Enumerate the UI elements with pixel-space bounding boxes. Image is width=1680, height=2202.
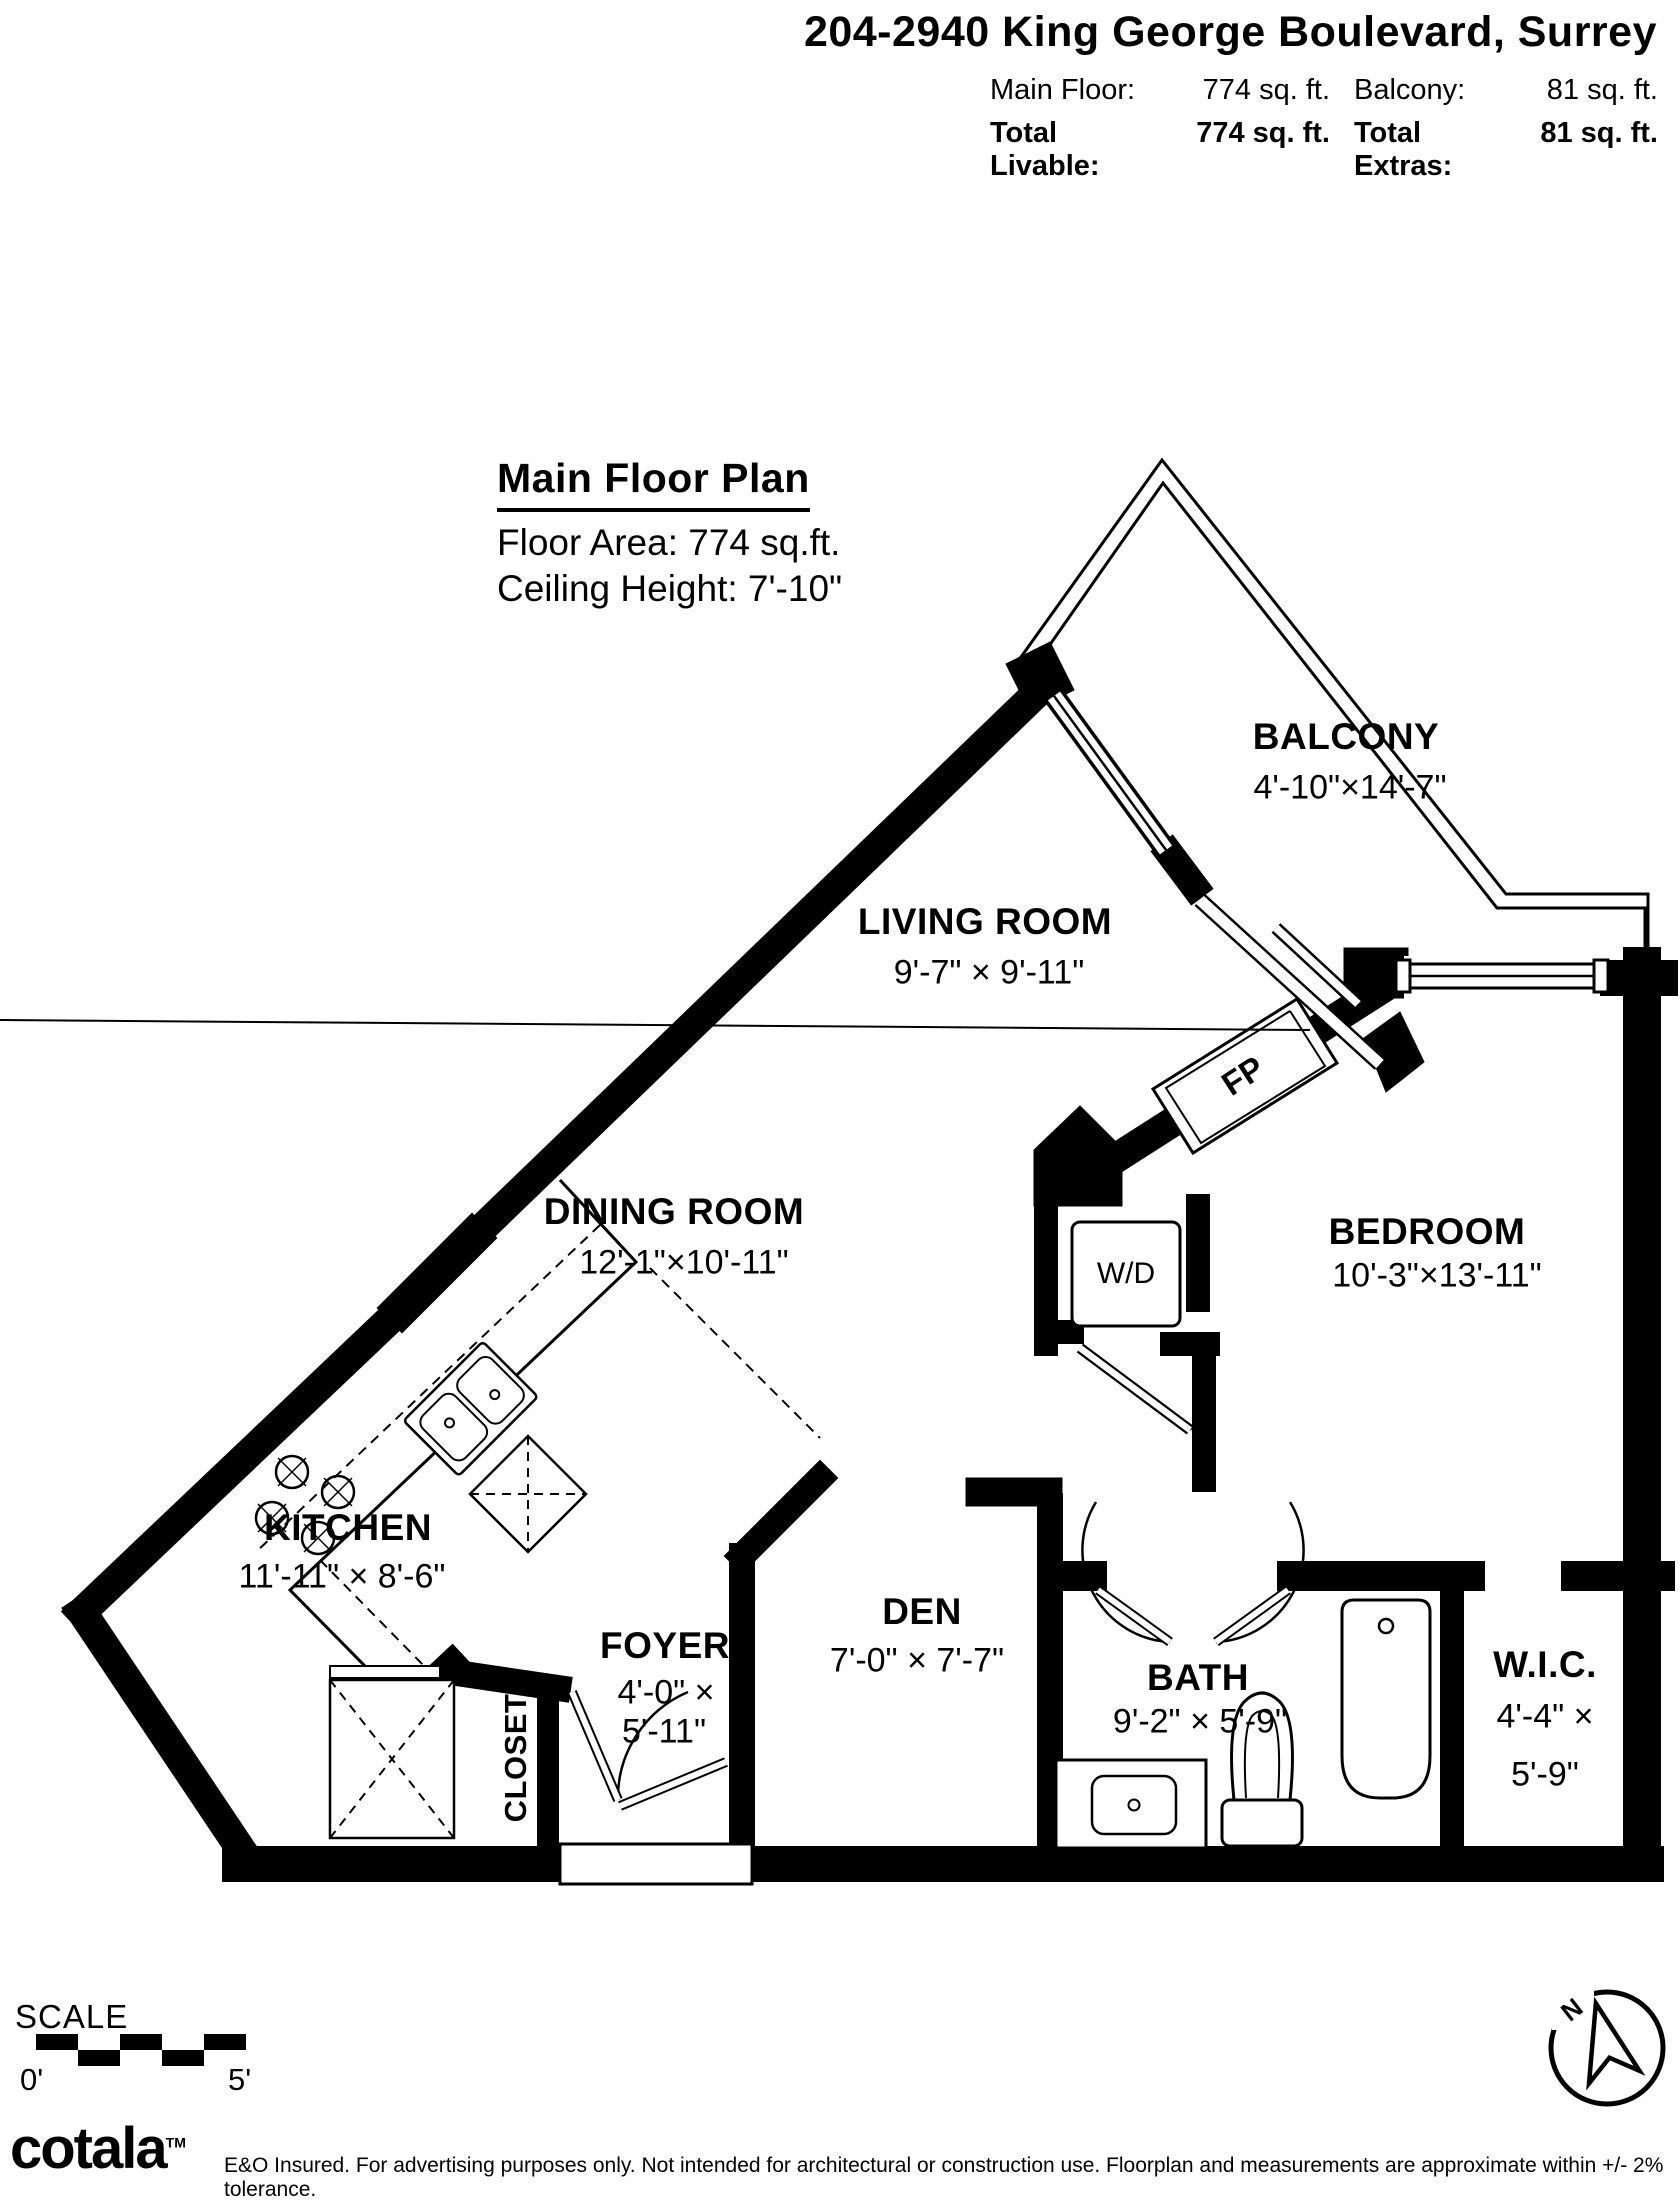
- page-title: 204-2940 King George Boulevard, Surrey: [804, 8, 1657, 57]
- bedroom-label: BEDROOM: [1329, 1211, 1526, 1253]
- balcony-area-value: 81 sq. ft.: [1500, 74, 1658, 107]
- wic-label: W.I.C.: [1493, 1644, 1597, 1686]
- closet-label: CLOSET: [498, 1694, 534, 1823]
- foyer-dims-1: 4'-0" ×: [617, 1674, 714, 1713]
- trademark-symbol: TM: [166, 2135, 186, 2151]
- balcony-railing: [1016, 460, 1648, 956]
- scale-start: 0': [20, 2062, 43, 2098]
- footer-disclaimer: E&O Insured. For advertising purposes on…: [224, 2154, 1664, 2202]
- fridge: [330, 1666, 454, 1838]
- floorplan-drawing: [0, 0, 1680, 2184]
- wic-dims-2: 5'-9": [1511, 1756, 1579, 1795]
- scale-bar: [36, 2034, 246, 2066]
- living-room-label: LIVING ROOM: [858, 901, 1112, 943]
- kitchen-label: KITCHEN: [264, 1507, 432, 1549]
- balcony-dims: 4'-10"×14'-7": [1253, 769, 1446, 808]
- scale-label: SCALE: [15, 1998, 128, 2036]
- living-room-dims: 9'-7" × 9'-11": [894, 954, 1085, 993]
- dining-room-label: DINING ROOM: [544, 1191, 804, 1233]
- scale-end: 5': [228, 2062, 251, 2098]
- total-livable-label: Total Livable:: [990, 117, 1150, 183]
- bath-dims: 9'-2" × 5'-9": [1113, 1703, 1287, 1742]
- kitchen-dims: 11'-11" × 8'-6": [239, 1558, 446, 1597]
- washer-dryer-label: W/D: [1097, 1257, 1155, 1291]
- plan-floor-area: Floor Area: 774 sq.ft.: [497, 522, 842, 564]
- den-label: DEN: [882, 1591, 962, 1633]
- floorplan-page: { "header": { "title": "204-2940 King Ge…: [0, 0, 1680, 2184]
- living-window: [1054, 696, 1166, 850]
- bath-label: BATH: [1147, 1657, 1249, 1699]
- wic-dims-1: 4'-4" ×: [1496, 1698, 1593, 1737]
- balcony-area-label: Balcony:: [1330, 74, 1500, 107]
- foyer-label: FOYER: [600, 1625, 730, 1667]
- den-dims: 7'-0" × 7'-7": [830, 1642, 1004, 1681]
- cotala-logo: cotalaTM: [10, 2120, 186, 2178]
- bath-vanity: [1056, 1760, 1206, 1848]
- main-floor-value: 774 sq. ft.: [1150, 74, 1330, 107]
- total-extras-label: Total Extras:: [1330, 117, 1500, 183]
- bath-doors: [1082, 1502, 1303, 1642]
- plan-ceiling-height: Ceiling Height: 7'-10": [497, 568, 842, 610]
- dining-room-dims: 12'-1"×10'-11": [579, 1244, 788, 1283]
- main-floor-label: Main Floor:: [990, 74, 1150, 107]
- cotala-wordmark: cotala: [10, 2116, 166, 2181]
- total-livable-value: 774 sq. ft.: [1150, 117, 1330, 183]
- area-stats: Main Floor: 774 sq. ft. Balcony: 81 sq. …: [990, 74, 1658, 183]
- dishwasher: [470, 1436, 586, 1552]
- bathtub: [1342, 1600, 1430, 1798]
- foyer-dims-2: 5'-11": [622, 1713, 706, 1752]
- plan-title-block: Main Floor Plan Floor Area: 774 sq.ft. C…: [497, 455, 842, 610]
- plan-title: Main Floor Plan: [497, 455, 810, 512]
- bedroom-window: [1396, 956, 1608, 1000]
- bedroom-dims: 10'-3"×13'-11": [1332, 1257, 1541, 1296]
- balcony-label: BALCONY: [1253, 716, 1439, 758]
- bedroom-door: [1080, 1348, 1211, 1430]
- total-extras-value: 81 sq. ft.: [1500, 117, 1658, 183]
